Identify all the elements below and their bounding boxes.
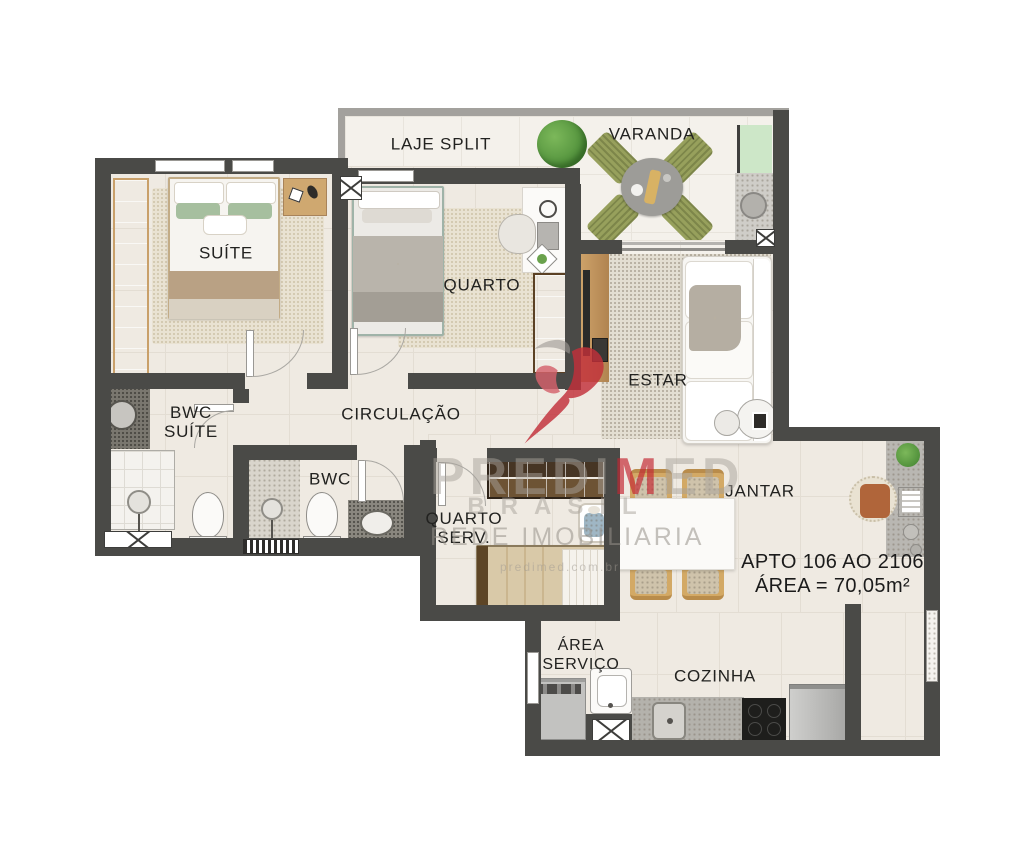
office-chair (849, 476, 897, 522)
window (527, 652, 539, 704)
bed-serv-pillow (562, 549, 606, 607)
toilet-icon (192, 492, 224, 538)
bwcsuite-drain-icon (127, 490, 151, 514)
decor-icon (903, 524, 919, 540)
tv-icon (583, 270, 590, 356)
fridge (789, 684, 847, 741)
blanket-speckled (353, 236, 443, 292)
bassinet-pad (584, 513, 604, 537)
tree-icon (537, 120, 587, 168)
room-label-estar: ESTAR (628, 371, 687, 390)
wall (525, 740, 940, 756)
sliding-door (622, 248, 725, 251)
apto-number: APTO 106 AO 2106 (735, 550, 930, 574)
pillow-small-icon (203, 215, 247, 235)
plant-icon (896, 443, 920, 467)
bed-quarto (352, 186, 444, 336)
bed-serv (476, 545, 608, 609)
decor-icon (288, 187, 303, 202)
wall (845, 604, 861, 744)
toilet-icon (306, 492, 338, 538)
tv-panel-estar (581, 250, 609, 382)
varanda-green-mat (737, 125, 772, 173)
wall (773, 110, 789, 253)
wall (95, 373, 245, 389)
plate-icon (663, 174, 671, 182)
tank-drain-icon (608, 703, 613, 708)
wall (233, 445, 357, 460)
bassinet-pillow (588, 506, 600, 514)
plate-icon (631, 184, 643, 196)
bwc-basin-icon (360, 510, 394, 536)
bed-serv-blanket (490, 547, 560, 607)
laundry-tank (590, 668, 632, 714)
shaft-xbox-icon (756, 229, 775, 247)
pillow-icon (362, 209, 432, 223)
picture-frame-icon (752, 412, 768, 430)
room-label-cozinha: COZINHA (674, 667, 756, 686)
shaft-xbox-icon (340, 176, 362, 200)
wall (420, 448, 437, 462)
room-label-circulacao: CIRCULAÇÃO (341, 405, 460, 424)
room-label-area-servico: ÁREA SERVIÇO (542, 636, 619, 674)
wall (773, 427, 940, 441)
blanket-tan (169, 271, 279, 299)
wall (338, 108, 789, 116)
room-label-quarto-serv: QUARTO SERV. (426, 509, 503, 547)
window (926, 610, 938, 682)
room-label-bwc-suite: BWC SUÍTE (164, 403, 218, 441)
wardrobe-shelf (489, 479, 605, 497)
nightstand-suite (283, 178, 327, 216)
tray-icon (644, 169, 662, 205)
desk-chair-quarto (498, 214, 536, 254)
room-label-varanda: VARANDA (609, 125, 696, 144)
wall (565, 184, 581, 390)
room-label-jantar: JANTAR (725, 482, 795, 501)
blanket-foot (169, 299, 279, 319)
room-label-bwc: BWC (309, 470, 351, 489)
room-label-laje: LAJE SPLIT (391, 135, 492, 154)
apto-area: ÁREA = 70,05m² (735, 574, 930, 598)
monitor-icon (898, 487, 924, 517)
wall (420, 605, 620, 621)
blanket-foot (353, 292, 443, 322)
side-table-large (737, 399, 777, 439)
kitchen-sink-icon (652, 702, 686, 740)
stove (742, 698, 786, 741)
bwcsuite-basin-icon (107, 400, 137, 430)
faucet-icon (667, 718, 673, 724)
tank-basin (597, 675, 627, 707)
wall (487, 448, 620, 462)
wall (233, 389, 249, 403)
window (232, 160, 274, 172)
pillow-icon (226, 182, 276, 204)
side-table-small (714, 410, 740, 436)
dining-chair-icon (630, 566, 672, 600)
decor-icon (305, 184, 320, 201)
wall (95, 158, 111, 556)
wall (604, 448, 620, 620)
pillow-icon (174, 182, 224, 204)
varanda-table (621, 158, 683, 216)
wall (408, 373, 580, 389)
varanda-sink-icon (740, 192, 767, 219)
dining-chair-icon (682, 566, 724, 600)
window (155, 160, 225, 172)
room-label-quarto: QUARTO (444, 276, 521, 295)
wardrobe-suite (113, 178, 149, 378)
room-label-suite: SUÍTE (199, 244, 253, 263)
pillow-icon (358, 191, 440, 209)
kitchen-counter (632, 697, 744, 742)
office-chair-seat (860, 484, 890, 518)
speaker-icon (592, 338, 608, 362)
plant-icon (535, 252, 549, 266)
wall (332, 168, 348, 389)
apartment-info: APTO 106 AO 2106 ÁREA = 70,05m² (735, 550, 930, 598)
bed-serv-headboard (477, 546, 488, 608)
sliding-door (622, 242, 725, 245)
throw-blanket (689, 285, 741, 351)
floorplan-canvas: LAJE SPLIT VARANDA SUÍTE QUARTO ESTAR BW… (0, 0, 1024, 853)
bwc-drain-icon (261, 498, 283, 520)
window (358, 170, 414, 182)
vent-grille-icon (243, 539, 299, 554)
wall (773, 250, 789, 440)
dining-table (617, 498, 735, 570)
shower-glass-icon (104, 531, 172, 548)
headphones-icon (539, 200, 557, 218)
wall (307, 373, 348, 389)
